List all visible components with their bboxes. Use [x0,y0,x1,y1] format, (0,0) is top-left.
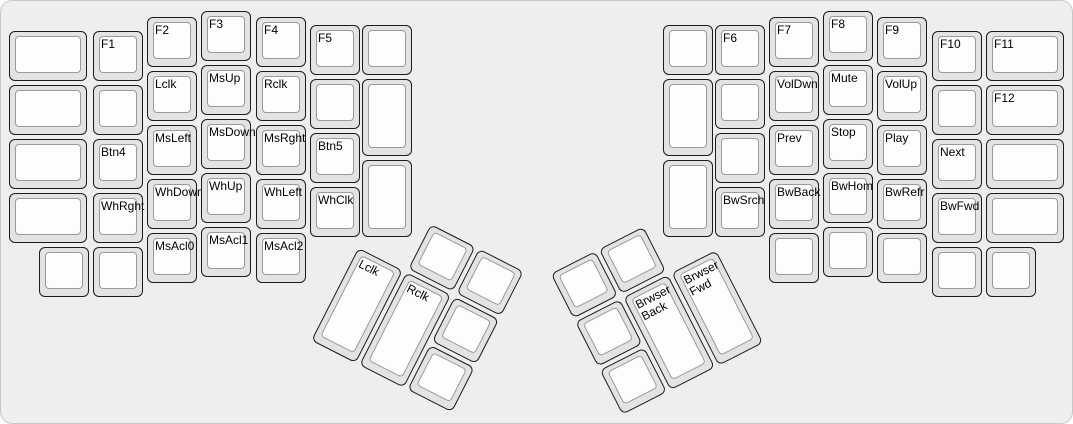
keycap-label: Btn4 [101,146,126,159]
key-msacl0[interactable]: MsAcl0 [147,233,197,283]
keycap-label: MsRght [264,132,305,145]
keycap-top [368,84,406,148]
keycap-label: MsDown [209,126,256,139]
key-blank[interactable] [362,79,412,156]
key-blank[interactable] [362,160,412,237]
keycap-label: F5 [318,32,332,45]
key-f9[interactable]: F9 [877,17,927,67]
keycap-top [775,238,813,275]
key-btn5[interactable]: Btn5 [310,133,360,183]
key-f2[interactable]: F2 [147,17,197,67]
key-bwhom[interactable]: BwHom [823,173,873,223]
keycap-top [99,90,137,127]
key-msacl1[interactable]: MsAcl1 [201,227,251,277]
key-bwsrch[interactable]: BwSrch [715,187,765,237]
keycap-label: F8 [831,18,845,31]
key-f6[interactable]: F6 [715,25,765,75]
key-blank[interactable] [93,247,143,297]
key-blank[interactable] [93,85,143,135]
keycap-label: F2 [155,24,169,37]
key-msacl2[interactable]: MsAcl2 [256,233,306,283]
keycap-top [669,165,707,229]
keycap-top [417,231,468,281]
key-whdown[interactable]: WhDown [147,179,197,229]
keycap-label: BwFwd [940,200,979,213]
keycap-top [99,252,137,289]
keycap-top [15,36,81,73]
keycap-label: F3 [209,18,223,31]
keycap-top [669,84,707,148]
key-bwback[interactable]: BwBack [769,179,819,229]
key-f12[interactable]: F12 [986,85,1064,135]
keycap-label: F4 [264,24,278,37]
key-blank[interactable] [932,85,982,135]
key-msup[interactable]: MsUp [201,65,251,115]
key-blank[interactable] [986,193,1064,243]
key-blank[interactable] [769,233,819,283]
keycap-label: WhRght [101,200,144,213]
key-blank[interactable] [986,139,1064,189]
key-blank[interactable] [932,247,982,297]
key-play[interactable]: Play [877,125,927,175]
keycap-top [992,198,1058,235]
key-blank[interactable] [986,247,1036,297]
key-blank[interactable] [823,227,873,277]
keycap-label: VolUp [885,78,917,91]
keyboard-canvas: F1Btn4WhRghtF2LclkMsLeftWhDownMsAcl0F3Ms… [0,0,1073,424]
keycap-label: MsAcl2 [264,240,303,253]
keycap-label: MsLeft [155,132,191,145]
keycap-top [416,352,467,402]
key-volup[interactable]: VolUp [877,71,927,121]
key-mute[interactable]: Mute [823,65,873,115]
keycap-label: Rclk [264,78,287,91]
keycap-top [607,355,658,405]
keycap-top [721,84,759,121]
keycap-top [15,198,81,235]
keycap-label: F1 [101,38,115,51]
key-f7[interactable]: F7 [769,17,819,67]
keycap-label: Next [940,146,965,159]
keycap-label: WhClk [318,194,353,207]
keycap-label: Btn5 [318,140,343,153]
keycap-top [368,30,406,67]
keycap-label: Play [885,132,908,145]
keycap-top [441,304,492,354]
key-lclk[interactable]: Lclk [147,71,197,121]
key-f8[interactable]: F8 [823,11,873,61]
key-blank[interactable] [9,85,87,135]
keycap-label: BwRefr [885,186,924,199]
keycap-top [316,84,354,121]
keycap-top [938,90,976,127]
key-whclk[interactable]: WhClk [310,187,360,237]
key-whrght[interactable]: WhRght [93,193,143,243]
key-msrght[interactable]: MsRght [256,125,306,175]
keycap-top [583,306,634,356]
keycap-top [992,252,1030,289]
key-blank[interactable] [9,193,87,243]
keycap-label: WhUp [209,180,242,193]
key-blank[interactable] [663,25,713,75]
key-blank[interactable] [9,31,87,81]
keycap-label: VolDwn [777,78,818,91]
key-blank[interactable] [715,133,765,183]
key-blank[interactable] [877,233,927,283]
key-voldwn[interactable]: VolDwn [769,71,819,121]
keycap-label: F12 [994,92,1015,105]
key-rclk[interactable]: Rclk [256,71,306,121]
key-next[interactable]: Next [932,139,982,189]
key-msdown[interactable]: MsDown [201,119,251,169]
key-whleft[interactable]: WhLeft [256,179,306,229]
keycap-top [465,256,516,306]
keycap-label: WhDown [155,186,204,199]
key-blank[interactable] [663,79,713,156]
key-blank[interactable] [310,79,360,129]
key-f5[interactable]: F5 [310,25,360,75]
key-f10[interactable]: F10 [932,31,982,81]
key-f4[interactable]: F4 [256,17,306,67]
keycap-top [883,238,921,275]
key-blank[interactable] [663,160,713,237]
key-blank[interactable] [362,25,412,75]
key-blank[interactable] [39,247,89,297]
key-bwrefr[interactable]: BwRefr [877,179,927,229]
keycap-label: Prev [777,132,802,145]
keycap-label: F6 [723,32,737,45]
keycap-top [721,138,759,175]
keycap-top [558,258,609,308]
keycap-label: F9 [885,24,899,37]
keycap-label: BwSrch [723,194,764,207]
key-blank[interactable] [715,79,765,129]
keycap-label: Stop [831,126,856,139]
keycap-label: Mute [831,72,858,85]
keycap-label: BwHom [831,180,873,193]
keycap-top [15,90,81,127]
keycap-label: F10 [940,38,961,51]
key-stop[interactable]: Stop [823,119,873,169]
key-msleft[interactable]: MsLeft [147,125,197,175]
keycap-top [992,144,1058,181]
key-btn4[interactable]: Btn4 [93,139,143,189]
keycap-label: MsAcl1 [209,234,248,247]
keycap-label: F7 [777,24,791,37]
key-bwfwd[interactable]: BwFwd [932,193,982,243]
keycap-top [606,234,657,284]
keycap-top [938,252,976,289]
keycap-top [45,252,83,289]
keycap-top [669,30,707,67]
keycap-label: WhLeft [264,186,302,199]
key-f1[interactable]: F1 [93,31,143,81]
keycap-top [829,232,867,269]
keycap-label: Lclk [155,78,176,91]
key-prev[interactable]: Prev [769,125,819,175]
keycap-label: MsAcl0 [155,240,194,253]
key-blank[interactable] [9,139,87,189]
key-f3[interactable]: F3 [201,11,251,61]
keycap-label: BwBack [777,186,820,199]
keycap-top [368,165,406,229]
keycap-label: F11 [994,38,1014,51]
keycap-top [15,144,81,181]
key-whup[interactable]: WhUp [201,173,251,223]
keycap-label: MsUp [209,72,240,85]
key-f11[interactable]: F11 [986,31,1064,81]
